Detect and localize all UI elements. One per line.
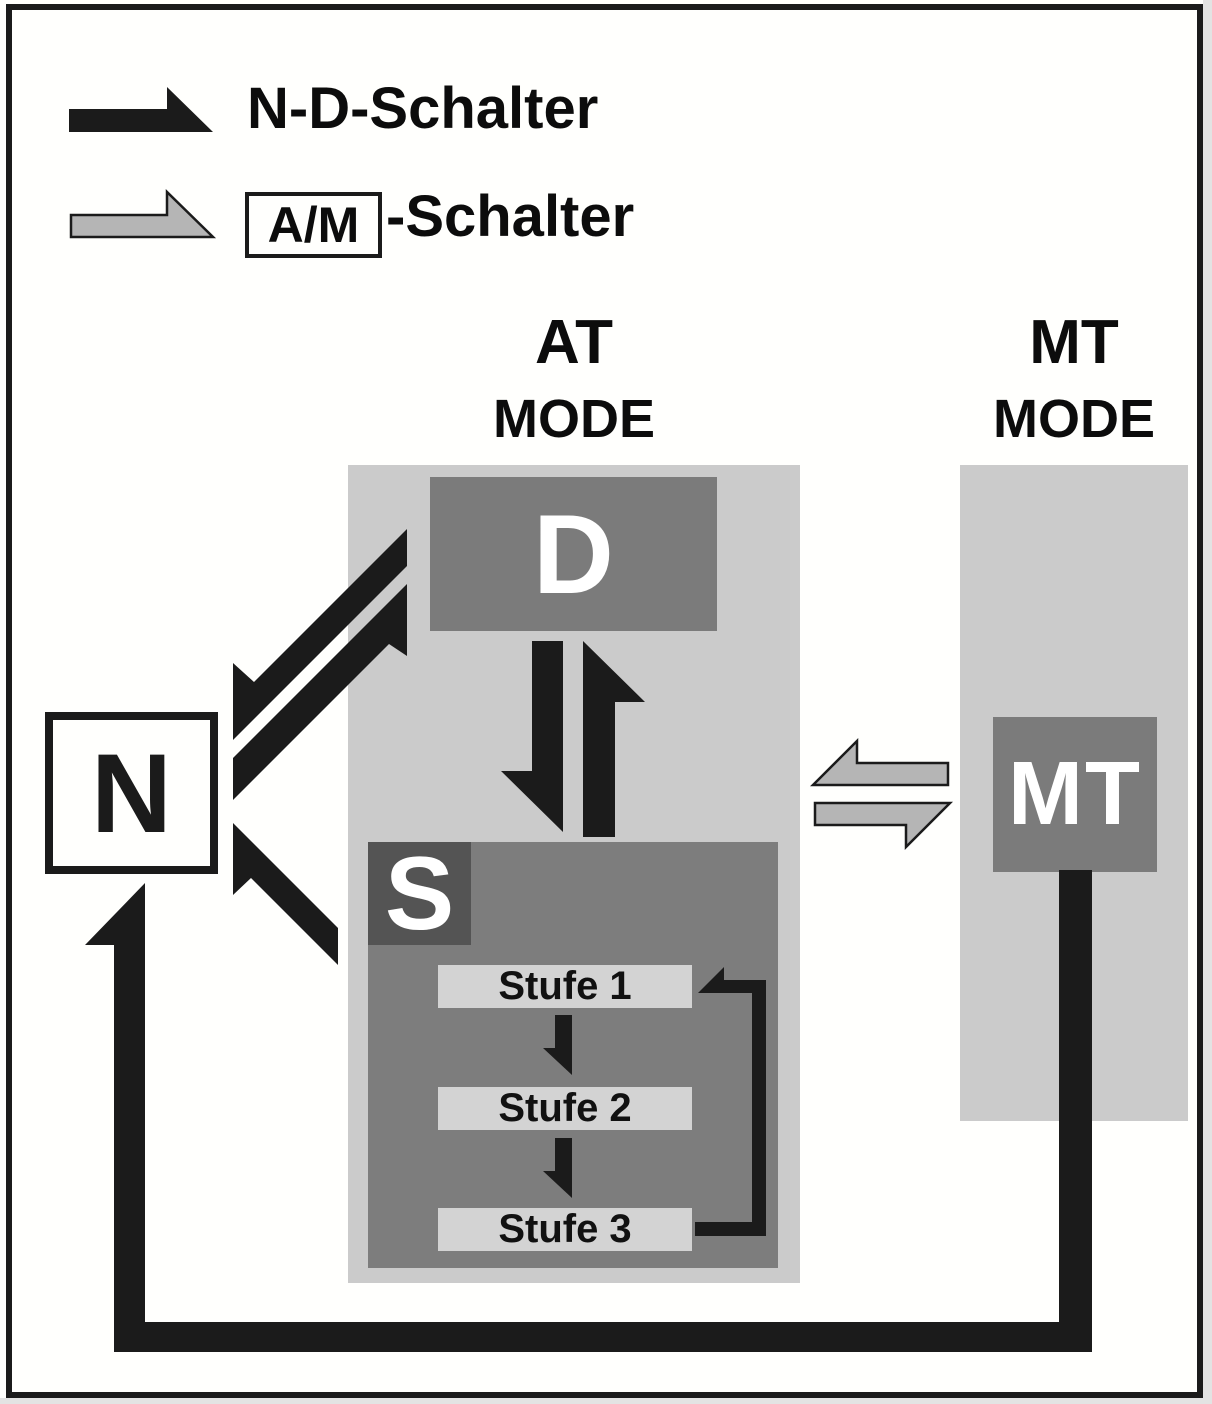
- page-edge-bottom: [0, 1398, 1212, 1404]
- page-edge-right: [1203, 0, 1212, 1404]
- transmission-mode-diagram: D S Stufe 1 Stufe 2 Stufe 3 MT N: [0, 0, 1212, 1404]
- page-border: [6, 4, 1203, 1398]
